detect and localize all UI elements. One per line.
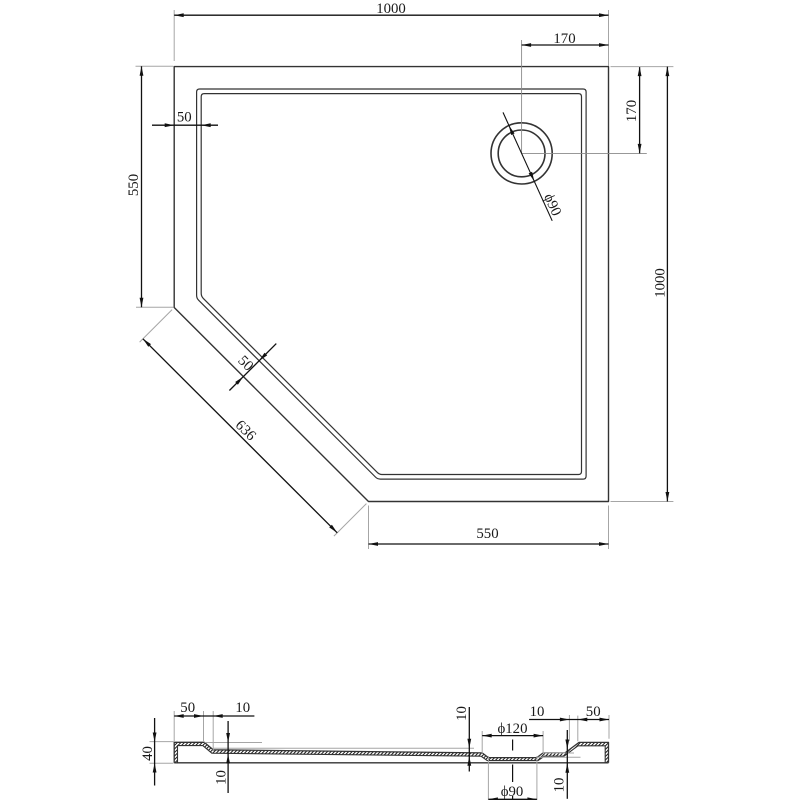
svg-text:1000: 1000: [653, 268, 669, 298]
svg-text:40: 40: [140, 746, 156, 761]
svg-text:550: 550: [126, 174, 142, 196]
svg-text:10: 10: [530, 704, 545, 720]
svg-text:1000: 1000: [376, 1, 406, 17]
svg-text:50: 50: [177, 110, 192, 126]
svg-text:10: 10: [552, 778, 568, 793]
svg-text:550: 550: [476, 526, 498, 542]
svg-text:10: 10: [454, 706, 470, 721]
svg-text:10: 10: [213, 770, 229, 785]
svg-text:ϕ120: ϕ120: [498, 721, 528, 737]
svg-text:50: 50: [180, 700, 195, 716]
svg-text:50: 50: [586, 704, 601, 720]
svg-text:10: 10: [235, 700, 250, 716]
svg-text:170: 170: [624, 100, 640, 122]
svg-text:170: 170: [553, 31, 575, 47]
